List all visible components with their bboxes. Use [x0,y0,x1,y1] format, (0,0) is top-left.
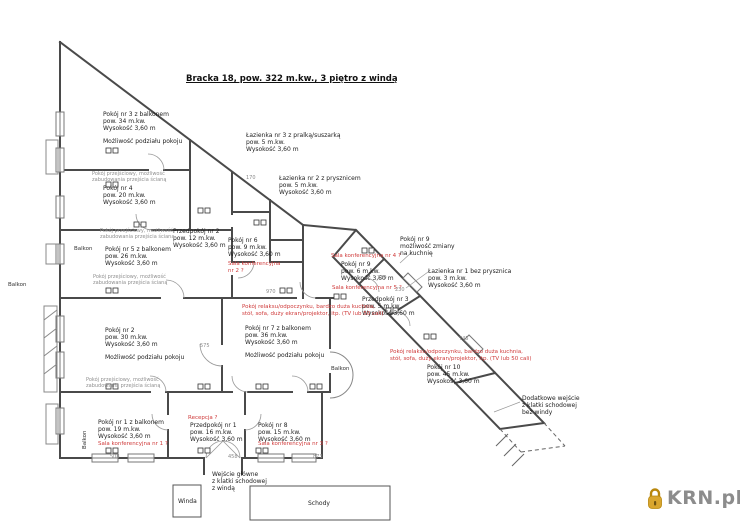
label-balkon-center: Balkon [331,366,350,373]
red-note-right: Pokój relaksu/odpoczynku, bardzo duża ku… [390,349,532,363]
dim-458: 458 [228,455,238,460]
red-sala-3: Sala konferencyjna nr 3 ? [258,441,328,448]
label-room-10: Pokój nr 10pow. 45 m.kw.Wysokość 3,60 m [427,364,480,385]
label-bath-3: Łazienka nr 3 z pralką/suszarkąpow. 5 m.… [246,132,341,153]
red-sala-5: Sala konferencyjna nr 5 ? [332,285,402,292]
label-room-2: Pokój nr 2pow. 30 m.kw.Wysokość 3,60 mMo… [105,327,184,361]
label-room-6: Pokój nr 6pow. 9 m.kw.Wysokość 3,60 m [228,237,281,258]
label-hall-2: Przedpokój nr 2pow. 12 m.kw.Wysokość 3,6… [173,228,226,249]
note-passage-3: Pokój przejściowy, możliwośćzabudowania … [93,274,167,286]
label-bath-2: Łazienka nr 2 z prysznicempow. 5 m.kw.Wy… [279,175,361,196]
red-note-center: Pokój relaksu/odpoczynku, bardzo duża ku… [242,304,384,318]
label-bath-1: Łazienka nr 1 bez prysznicapow. 3 m.kw.W… [428,268,511,289]
padlock-icon [646,486,664,510]
dim-508: 508 [110,455,120,460]
dim-170: 170 [246,176,256,181]
red-sala-4: Sala konferencyjna nr 4 ? [331,253,401,260]
label-room-7: Pokój nr 7 z balkonempow. 36 m.kw.Wysoko… [245,325,324,359]
dim-873: 873 [313,455,323,460]
label-balkon-left: Balkon [8,282,27,289]
label-hall-1: Przedpokój nr 1pow. 16 m.kw.Wysokość 3,6… [190,422,243,443]
dim-575: 575 [200,344,210,349]
note-passage-4: Pokój przejściowy, możliwośćzabudowania … [86,377,160,389]
label-room-9-note: Pokój nr 9możliwość zmianyna kuchnię [400,236,455,257]
krn-brand-text: KRN.pl [667,487,740,509]
label-room-1: Pokój nr 1 z balkonempow. 19 m.kw.Wysoko… [98,419,164,440]
label-entrance-extra: Dodatkowe wejściez klatki schodowejbez w… [522,395,580,416]
red-recepcja: Recepcja ? [188,415,217,422]
label-schody: Schody [308,500,330,507]
red-sala-2: Sala konferencyjnanr 2 ? [228,261,280,275]
label-balkon-bottom: Balkon [82,430,89,449]
label-entrance-main: Wejście głównez klatki schodowejz windą [212,471,267,492]
label-room-3: Pokój nr 3 z balkonempow. 34 m.kw.Wysoko… [103,111,182,145]
dim-745: 745 [459,337,469,342]
label-winda: Winda [178,498,197,505]
label-balkon-mid: Balkon [74,246,93,253]
note-passage-1: Pokój przejściowy, możliwośćzabudowania … [92,171,166,183]
krn-logo: KRN.pl [646,486,740,510]
dim-330: 330 [377,276,387,281]
dim-970: 970 [266,290,276,295]
annotation-layer: Pokój nr 3 z balkonempow. 34 m.kw.Wysoko… [0,0,740,524]
red-sala-1: Sala konferencyjna nr 1 ? [98,441,168,448]
label-room-8: Pokój nr 8pow. 15 m.kw.Wysokość 3,60 m [258,422,311,443]
dim-230: 230 [395,288,405,293]
floorplan-page: Bracka 18, pow. 322 m.kw., 3 piętro z wi… [0,0,740,524]
label-room-4: Pokój nr 4pow. 20 m.kw.Wysokość 3,60 m [103,185,156,206]
label-room-5: Pokój nr 5 z balkonempow. 26 m.kw.Wysoko… [105,246,171,267]
note-passage-2: Pokój przejściowy, możliwośćzabudowania … [100,228,174,240]
